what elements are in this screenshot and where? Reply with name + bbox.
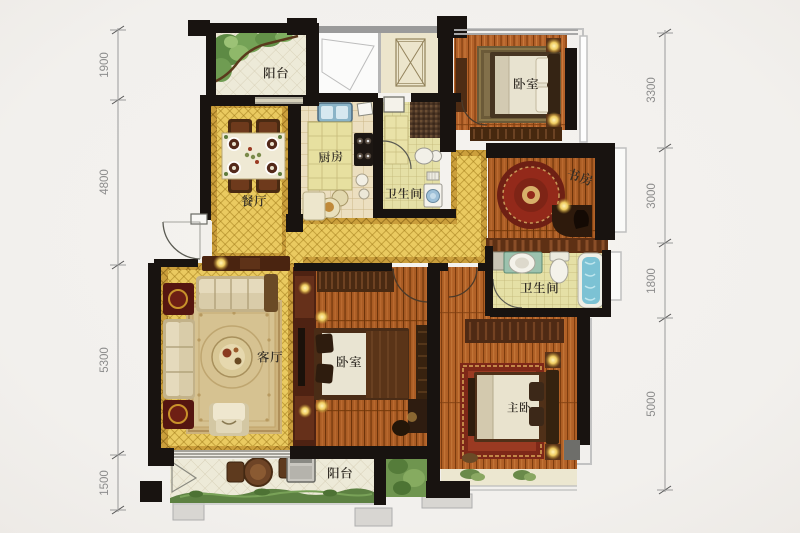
svg-text:1800: 1800 bbox=[646, 268, 658, 294]
svg-text:4800: 4800 bbox=[99, 169, 111, 195]
svg-text:3300: 3300 bbox=[646, 77, 658, 103]
svg-text:5300: 5300 bbox=[99, 347, 111, 373]
svg-text:1900: 1900 bbox=[99, 52, 111, 78]
svg-text:3000: 3000 bbox=[646, 183, 658, 209]
svg-text:5000: 5000 bbox=[646, 391, 658, 417]
svg-text:1500: 1500 bbox=[99, 470, 111, 496]
